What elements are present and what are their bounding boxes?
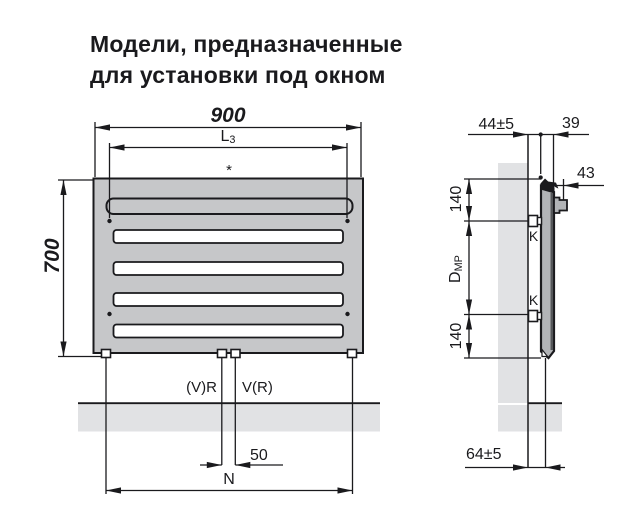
panel-slot-4 <box>114 325 344 338</box>
mount-hole-top-right <box>345 219 349 223</box>
page-title-line1: Модели, предназначенные <box>90 29 403 60</box>
dim-n-label: N <box>106 471 352 489</box>
panel-slot-3 <box>114 293 344 306</box>
dim-140-top-label: 140 <box>448 169 466 229</box>
bottom-tab-right <box>348 350 357 358</box>
bracket-k-top-label: K <box>527 228 540 244</box>
connection-right-label: V(R) <box>242 379 273 396</box>
dim-chain-dot-mount <box>539 175 543 179</box>
dim-l3-label: L3 <box>109 128 347 146</box>
dim-64-label: 64±5 <box>466 446 501 464</box>
technical-drawing-page: Модели, предназначенные для установки по… <box>0 0 623 506</box>
dim-43-label: 43 <box>577 165 595 183</box>
connection-left-label: (V)R <box>160 379 217 396</box>
dim-700-label: 700 <box>41 211 65 301</box>
mount-hole-bottom-left <box>107 312 111 316</box>
dim-dmp-label: DMP <box>446 234 466 304</box>
mount-hole-bottom-right <box>345 312 349 316</box>
bracket-k-bottom-label: K <box>527 292 540 308</box>
bracket-k-top-lip <box>538 218 542 225</box>
towel-rail-side <box>554 198 567 214</box>
dim-39-label: 39 <box>562 115 580 133</box>
side-floor-section <box>498 405 562 432</box>
page-title: Модели, предназначенные для установки по… <box>90 29 403 91</box>
bottom-tab-center-right <box>231 350 240 358</box>
towel-rail-front <box>107 199 353 215</box>
dim-900-label: 900 <box>95 104 361 128</box>
bottom-tab-center-left <box>218 350 227 358</box>
side-wall-section <box>498 163 528 403</box>
front-floor-section <box>78 405 380 432</box>
panel-slot-2 <box>114 262 344 275</box>
dim-44-label: 44±5 <box>454 116 514 134</box>
dim-50-label: 50 <box>250 447 268 465</box>
bracket-k-bottom <box>529 311 538 322</box>
bracket-k-bottom-lip <box>538 313 542 320</box>
footnote-asterisk: * <box>199 162 259 179</box>
mount-hole-top-left <box>107 219 111 223</box>
dim-140-bottom-label: 140 <box>448 306 466 366</box>
bracket-k-top <box>529 216 538 227</box>
panel-slot-1 <box>114 230 344 243</box>
dim-chain-dot-top <box>539 132 543 136</box>
bottom-tab-left <box>102 350 111 358</box>
page-title-line2: для установки под окном <box>90 60 403 91</box>
